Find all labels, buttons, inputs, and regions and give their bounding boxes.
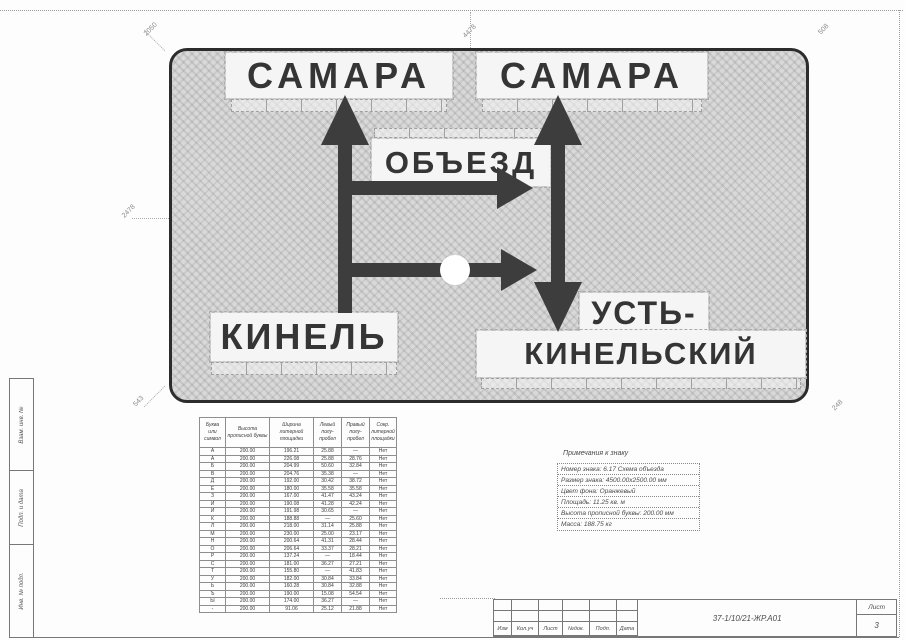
table-row: А200.00226.0825.8828.76Нет — [200, 455, 397, 463]
table-cell: 35.58 — [314, 485, 342, 493]
letter-table-wrap: Буква или символВысота прописной буквыШи… — [199, 417, 397, 613]
table-row: Ъ200.00190.0015.0854.54Нет — [200, 590, 397, 598]
letter-table-header-cell: Высота прописной буквы — [226, 418, 270, 448]
table-cell: Нет — [370, 508, 397, 516]
table-cell: З — [200, 493, 226, 501]
table-cell: — — [342, 448, 370, 456]
table-row: О200.00206.6433.3728.21Нет — [200, 545, 397, 553]
table-cell: 200.00 — [226, 605, 270, 613]
table-cell: Нет — [370, 515, 397, 523]
table-cell: 36.27 — [314, 560, 342, 568]
titleblock-top-line — [440, 598, 495, 599]
stamp-box-podp: Подп. и дата — [10, 471, 33, 545]
arrow-branch2-shaft — [345, 263, 501, 277]
sheet-number: 3 — [857, 615, 896, 636]
titleblock-column-label: Лист — [539, 622, 563, 636]
titleblock-empty-cell — [494, 600, 512, 611]
table-cell: Нет — [370, 575, 397, 583]
sign-arrows — [171, 51, 807, 400]
table-row: Р200.00137.24—18.44Нет — [200, 553, 397, 561]
table-cell: 204.99 — [270, 463, 314, 471]
titleblock-column-label: Кол.уч — [512, 622, 539, 636]
table-cell: М — [200, 530, 226, 538]
table-cell: 200.00 — [226, 538, 270, 546]
document-number: 37-1/10/21-ЖР.А01 — [638, 600, 856, 636]
table-cell: 191.98 — [270, 508, 314, 516]
table-row: В200.00204.7635.38—Нет — [200, 470, 397, 478]
table-cell: 174.00 — [270, 598, 314, 606]
table-row: Д200.00192.0030.4238.72Нет — [200, 478, 397, 486]
table-cell: Ъ — [200, 590, 226, 598]
table-cell: 226.08 — [270, 455, 314, 463]
table-cell: 41.28 — [314, 500, 342, 508]
table-cell: Ь — [200, 583, 226, 591]
table-cell: - — [200, 605, 226, 613]
titleblock-empty-cell — [512, 600, 539, 611]
letter-table-head: Буква или символВысота прописной буквыШи… — [200, 418, 397, 448]
titleblock-empty-cell — [512, 611, 539, 622]
table-cell: 21.88 — [342, 605, 370, 613]
table-row: И200.00190.0841.2842.24Нет — [200, 500, 397, 508]
stamp-label-inv: Инв. № подл. — [19, 572, 25, 609]
table-cell: 32.84 — [342, 463, 370, 471]
letter-table: Буква или символВысота прописной буквыШи… — [199, 417, 397, 613]
titleblock-empty-cell — [563, 600, 590, 611]
table-cell: — — [314, 515, 342, 523]
arrow-up-left-shaft — [338, 139, 352, 313]
table-cell: 35.58 — [342, 485, 370, 493]
table-cell: 32.88 — [342, 583, 370, 591]
stamp-label-vzam: Взам. инв. № — [19, 406, 25, 443]
table-cell: Б — [200, 463, 226, 471]
table-cell: 200.00 — [226, 560, 270, 568]
table-cell: — — [342, 470, 370, 478]
stamp-strip: Взам. инв. № Подп. и дата Инв. № подл. — [9, 378, 34, 637]
note-line: Размер знака: 4500.00x2500.00 мм — [558, 475, 699, 486]
table-cell: 200.00 — [226, 470, 270, 478]
table-cell: Д — [200, 478, 226, 486]
table-cell: 30.84 — [314, 583, 342, 591]
dim-connector-top-left — [144, 30, 165, 51]
table-row: З200.00167.0041.4743.24Нет — [200, 493, 397, 501]
table-cell: 200.00 — [226, 463, 270, 471]
table-cell: 25.88 — [314, 448, 342, 456]
sheet-cell: Лист 3 — [856, 600, 896, 636]
table-cell: 196.21 — [270, 448, 314, 456]
table-cell: 41.47 — [314, 493, 342, 501]
table-cell: Нет — [370, 605, 397, 613]
table-cell: 38.72 — [342, 478, 370, 486]
table-cell: Нет — [370, 538, 397, 546]
table-cell: 33.84 — [342, 575, 370, 583]
table-row: Л200.00218.0031.1425.88Нет — [200, 523, 397, 531]
table-cell: — — [342, 598, 370, 606]
table-cell: Р — [200, 553, 226, 561]
note-line: Высота прописной буквы: 200.00 мм — [558, 508, 699, 519]
table-cell: 25.60 — [342, 515, 370, 523]
letter-table-body: А200.00196.2125.88—НетА200.00226.0825.88… — [200, 448, 397, 613]
table-cell: 41.83 — [342, 568, 370, 576]
table-cell: 33.37 — [314, 545, 342, 553]
table-row: К200.00188.88—25.60Нет — [200, 515, 397, 523]
table-cell: — — [314, 553, 342, 561]
arrow-up-left-head — [321, 95, 369, 145]
note-line: Масса: 188.75 кг — [558, 519, 699, 530]
table-cell: 28.44 — [342, 538, 370, 546]
table-cell: 192.00 — [270, 478, 314, 486]
titleblock-empty-cell — [539, 600, 563, 611]
table-cell: Нет — [370, 530, 397, 538]
table-row: Ь200.00160.2830.8432.88Нет — [200, 583, 397, 591]
stamp-label-podp: Подп. и дата — [19, 489, 25, 527]
table-cell: Нет — [370, 455, 397, 463]
table-cell: В — [200, 470, 226, 478]
titleblock-revision-grid: ИзмКол.учЛист№док.Подп.Дата — [494, 600, 638, 636]
notes-box: Номер знака: 6.17 Схема объездаРазмер зн… — [557, 463, 700, 531]
table-cell: Нет — [370, 478, 397, 486]
table-cell: О — [200, 545, 226, 553]
arrow-right-up-head — [534, 95, 582, 145]
table-row: С200.00181.0036.2727.21Нет — [200, 560, 397, 568]
table-cell: Нет — [370, 560, 397, 568]
stamp-box-inv: Инв. № подл. — [10, 545, 33, 636]
table-cell: 28.21 — [342, 545, 370, 553]
table-cell: 18.44 — [342, 553, 370, 561]
table-cell: — — [342, 508, 370, 516]
arrow-branch1-head — [497, 167, 533, 209]
table-cell: 30.84 — [314, 575, 342, 583]
table-cell: 181.00 — [270, 560, 314, 568]
table-cell: 200.00 — [226, 515, 270, 523]
table-cell: 160.28 — [270, 583, 314, 591]
table-cell: Нет — [370, 500, 397, 508]
table-cell: 200.00 — [226, 598, 270, 606]
table-row: Б200.00204.9950.6032.84Нет — [200, 463, 397, 471]
table-cell: 200.00 — [226, 553, 270, 561]
table-cell: 200.00 — [226, 493, 270, 501]
table-cell: Нет — [370, 553, 397, 561]
table-cell: 15.08 — [314, 590, 342, 598]
table-row: Ы200.00174.0036.27—Нет — [200, 598, 397, 606]
table-cell: С — [200, 560, 226, 568]
frame-top-line — [0, 10, 903, 11]
table-cell: Н — [200, 538, 226, 546]
arrow-branch2-head — [501, 249, 537, 291]
table-cell: 36.27 — [314, 598, 342, 606]
notes-title: Примечания к знаку — [563, 450, 628, 457]
letter-table-header-cell: Буква или символ — [200, 418, 226, 448]
table-cell: 200.00 — [226, 530, 270, 538]
junction-dot — [440, 255, 470, 285]
letter-table-header-cell: Сокр. литерной площадки — [370, 418, 397, 448]
table-cell: А — [200, 448, 226, 456]
table-cell: 25.88 — [314, 455, 342, 463]
table-cell: 35.38 — [314, 470, 342, 478]
frame-bottom-line — [9, 637, 899, 638]
table-cell: 200.00 — [226, 590, 270, 598]
table-row: М200.00230.0025.0023.17Нет — [200, 530, 397, 538]
titleblock-column-label: Изм — [494, 622, 512, 636]
dim-top-right: 508 — [817, 23, 830, 36]
table-cell: Нет — [370, 598, 397, 606]
table-cell: 206.64 — [270, 545, 314, 553]
note-line: Цвет фона: Оранжевый — [558, 486, 699, 497]
table-cell: 25.88 — [342, 523, 370, 531]
table-row: Е200.00180.0035.5835.58Нет — [200, 485, 397, 493]
table-cell: 200.00 — [226, 583, 270, 591]
titleblock-empty-cell — [617, 611, 638, 622]
note-line: Площадь: 11.25 кв. м — [558, 497, 699, 508]
titleblock-empty-cell — [590, 600, 617, 611]
table-cell: 200.64 — [270, 538, 314, 546]
table-cell: 180.00 — [270, 485, 314, 493]
titleblock-empty-cell — [494, 611, 512, 622]
table-row: У200.00182.0030.8433.84Нет — [200, 575, 397, 583]
table-cell: 137.24 — [270, 553, 314, 561]
table-cell: 200.00 — [226, 545, 270, 553]
table-cell: У — [200, 575, 226, 583]
table-cell: 200.00 — [226, 575, 270, 583]
table-cell: 200.00 — [226, 455, 270, 463]
arrow-right-down-head — [534, 282, 582, 332]
table-cell: 200.00 — [226, 478, 270, 486]
table-cell: 23.17 — [342, 530, 370, 538]
table-cell: 25.00 — [314, 530, 342, 538]
table-cell: Нет — [370, 545, 397, 553]
table-cell: Е — [200, 485, 226, 493]
table-cell: Нет — [370, 583, 397, 591]
titleblock-empty-cell — [590, 611, 617, 622]
table-cell: 200.00 — [226, 485, 270, 493]
table-cell: 204.76 — [270, 470, 314, 478]
table-cell: 190.00 — [270, 590, 314, 598]
titleblock-column-label: Дата — [617, 622, 638, 636]
table-cell: Й — [200, 508, 226, 516]
arrow-right-shaft — [551, 139, 565, 286]
table-row: Й200.00191.9830.65—Нет — [200, 508, 397, 516]
table-cell: 50.60 — [314, 463, 342, 471]
table-cell: Ы — [200, 598, 226, 606]
titleblock-empty-cell — [617, 600, 638, 611]
table-cell: 28.76 — [342, 455, 370, 463]
frame-right-line — [899, 10, 900, 637]
table-cell: 25.12 — [314, 605, 342, 613]
table-cell: 200.00 — [226, 523, 270, 531]
titleblock-column-label: №док. — [563, 622, 590, 636]
table-row: Н200.00200.6441.3128.44Нет — [200, 538, 397, 546]
table-cell: Нет — [370, 523, 397, 531]
table-cell: 27.21 — [342, 560, 370, 568]
letter-table-header-cell: Левый полу-пробел — [314, 418, 342, 448]
table-cell: 188.88 — [270, 515, 314, 523]
table-cell: 200.00 — [226, 500, 270, 508]
table-cell: И — [200, 500, 226, 508]
table-cell: Л — [200, 523, 226, 531]
table-cell: 91.06 — [270, 605, 314, 613]
title-block: ИзмКол.учЛист№док.Подп.Дата 37-1/10/21-Ж… — [493, 599, 897, 637]
table-cell: Нет — [370, 590, 397, 598]
table-cell: 41.31 — [314, 538, 342, 546]
titleblock-column-label: Подп. — [590, 622, 617, 636]
note-line: Номер знака: 6.17 Схема объезда — [558, 464, 699, 475]
dim-connector-top — [470, 12, 471, 48]
table-cell: 182.00 — [270, 575, 314, 583]
table-cell: 42.24 — [342, 500, 370, 508]
table-cell: — — [314, 568, 342, 576]
sheet-label: Лист — [857, 600, 896, 615]
titleblock-empty-cell — [539, 611, 563, 622]
table-row: А200.00196.2125.88—Нет — [200, 448, 397, 456]
table-cell: 200.00 — [226, 448, 270, 456]
dim-bottom-right: 248 — [831, 399, 844, 412]
letter-table-header-cell: Ширина литерной площадки — [270, 418, 314, 448]
dim-connector-bottom-left — [144, 386, 165, 407]
table-cell: А — [200, 455, 226, 463]
table-cell: 167.00 — [270, 493, 314, 501]
letter-table-header-cell: Правый полу-пробел — [342, 418, 370, 448]
table-cell: 200.00 — [226, 508, 270, 516]
table-cell: К — [200, 515, 226, 523]
table-cell: Нет — [370, 470, 397, 478]
dim-connector-left — [132, 218, 169, 219]
table-cell: 30.42 — [314, 478, 342, 486]
table-cell: Нет — [370, 463, 397, 471]
titleblock-empty-cell — [563, 611, 590, 622]
arrow-branch1-shaft — [345, 181, 497, 195]
table-cell: 218.00 — [270, 523, 314, 531]
drawing-sheet: Взам. инв. № Подп. и дата Инв. № подл. С… — [0, 0, 905, 640]
table-cell: 190.08 — [270, 500, 314, 508]
table-cell: Нет — [370, 485, 397, 493]
table-cell: 200.00 — [226, 568, 270, 576]
table-cell: 43.24 — [342, 493, 370, 501]
table-cell: 31.14 — [314, 523, 342, 531]
table-cell: 30.65 — [314, 508, 342, 516]
stamp-box-vzam: Взам. инв. № — [10, 379, 33, 471]
table-cell: Нет — [370, 493, 397, 501]
table-cell: Т — [200, 568, 226, 576]
table-cell: 230.00 — [270, 530, 314, 538]
table-cell: Нет — [370, 448, 397, 456]
table-row: -200.0091.0625.1221.88Нет — [200, 605, 397, 613]
table-cell: Нет — [370, 568, 397, 576]
table-cell: 54.54 — [342, 590, 370, 598]
table-row: Т200.00155.80—41.83Нет — [200, 568, 397, 576]
table-cell: 155.80 — [270, 568, 314, 576]
